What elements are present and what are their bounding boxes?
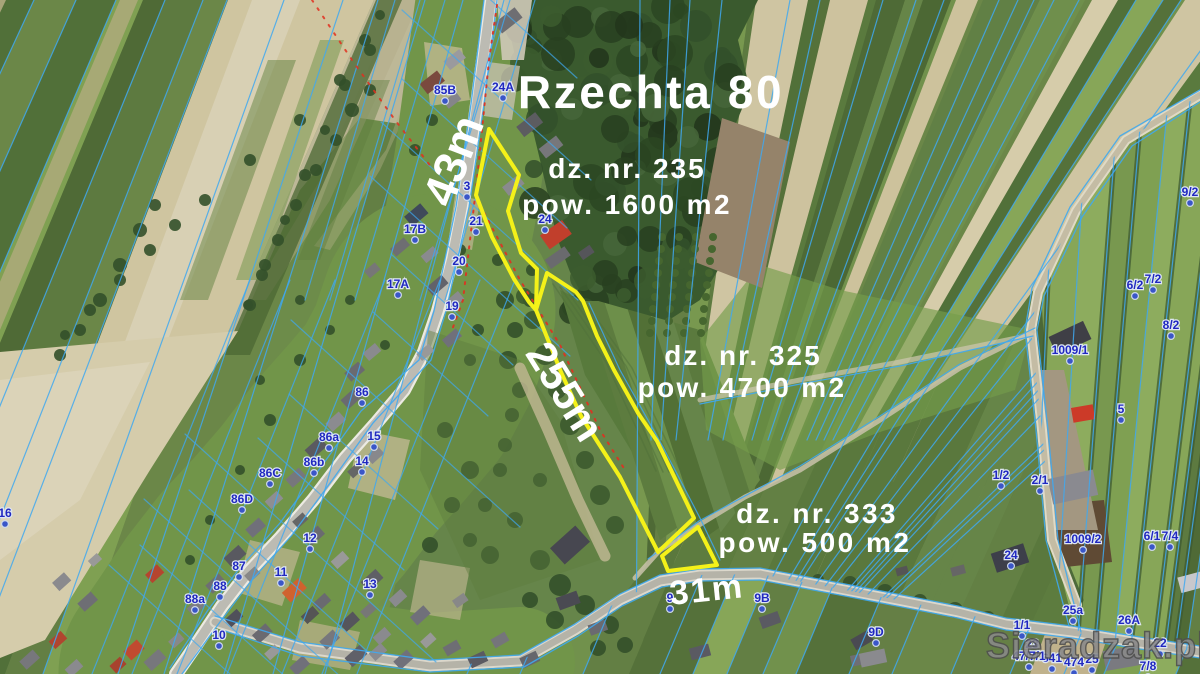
svg-text:85B: 85B (434, 83, 456, 97)
svg-text:88a: 88a (185, 592, 205, 606)
svg-text:15: 15 (367, 429, 381, 443)
svg-text:86C: 86C (259, 466, 281, 480)
svg-text:86: 86 (355, 385, 369, 399)
svg-text:9B: 9B (754, 591, 770, 605)
svg-text:6/2: 6/2 (1127, 278, 1144, 292)
svg-text:86a: 86a (319, 430, 339, 444)
svg-text:9D: 9D (868, 625, 884, 639)
svg-text:24A: 24A (492, 80, 514, 94)
svg-text:dz. nr. 325: dz. nr. 325 (664, 340, 821, 371)
svg-text:11: 11 (275, 565, 288, 579)
svg-text:pow. 4700 m2: pow. 4700 m2 (638, 372, 847, 403)
svg-text:10: 10 (212, 628, 226, 642)
svg-text:13: 13 (363, 577, 377, 591)
svg-text:31m: 31m (668, 567, 746, 613)
svg-text:dz. nr. 333: dz. nr. 333 (736, 498, 898, 529)
svg-text:pow. 500 m2: pow. 500 m2 (719, 527, 912, 558)
svg-text:88: 88 (213, 579, 227, 593)
svg-text:14: 14 (355, 454, 369, 468)
svg-text:87: 87 (232, 559, 246, 573)
svg-text:16: 16 (0, 506, 12, 520)
svg-text:86b: 86b (304, 455, 325, 469)
svg-text:20: 20 (452, 254, 466, 268)
svg-text:1009/2: 1009/2 (1065, 532, 1102, 546)
svg-text:1009/1: 1009/1 (1052, 343, 1089, 357)
svg-text:17B: 17B (404, 222, 426, 236)
svg-text:Rzechta 80: Rzechta 80 (518, 66, 784, 118)
svg-text:7/2: 7/2 (1145, 272, 1162, 286)
svg-text:pow. 1600 m2: pow. 1600 m2 (522, 189, 732, 220)
svg-text:19: 19 (445, 299, 459, 313)
svg-text:1/2: 1/2 (993, 468, 1010, 482)
svg-text:7/4: 7/4 (1162, 529, 1179, 543)
svg-text:25a: 25a (1063, 603, 1083, 617)
svg-text:24: 24 (1004, 548, 1018, 562)
svg-text:Sieradzak.pl: Sieradzak.pl (986, 625, 1200, 666)
svg-text:86D: 86D (231, 492, 253, 506)
svg-text:21: 21 (469, 214, 483, 228)
svg-text:2/1: 2/1 (1032, 473, 1049, 487)
svg-text:dz. nr. 235: dz. nr. 235 (548, 153, 705, 184)
svg-text:9/2: 9/2 (1182, 185, 1199, 199)
svg-text:8/2: 8/2 (1163, 318, 1180, 332)
svg-text:17A: 17A (387, 277, 409, 291)
svg-text:5: 5 (1118, 402, 1125, 416)
svg-text:6/1: 6/1 (1144, 529, 1161, 543)
svg-text:12: 12 (303, 531, 317, 545)
